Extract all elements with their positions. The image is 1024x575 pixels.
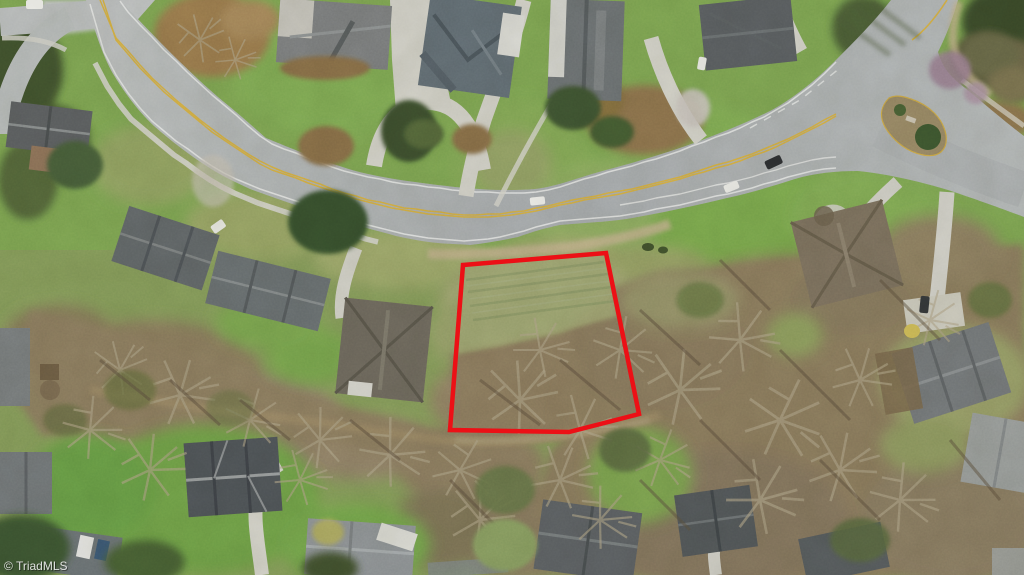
svg-text:© TriadMLS: © TriadMLS [4,559,68,573]
